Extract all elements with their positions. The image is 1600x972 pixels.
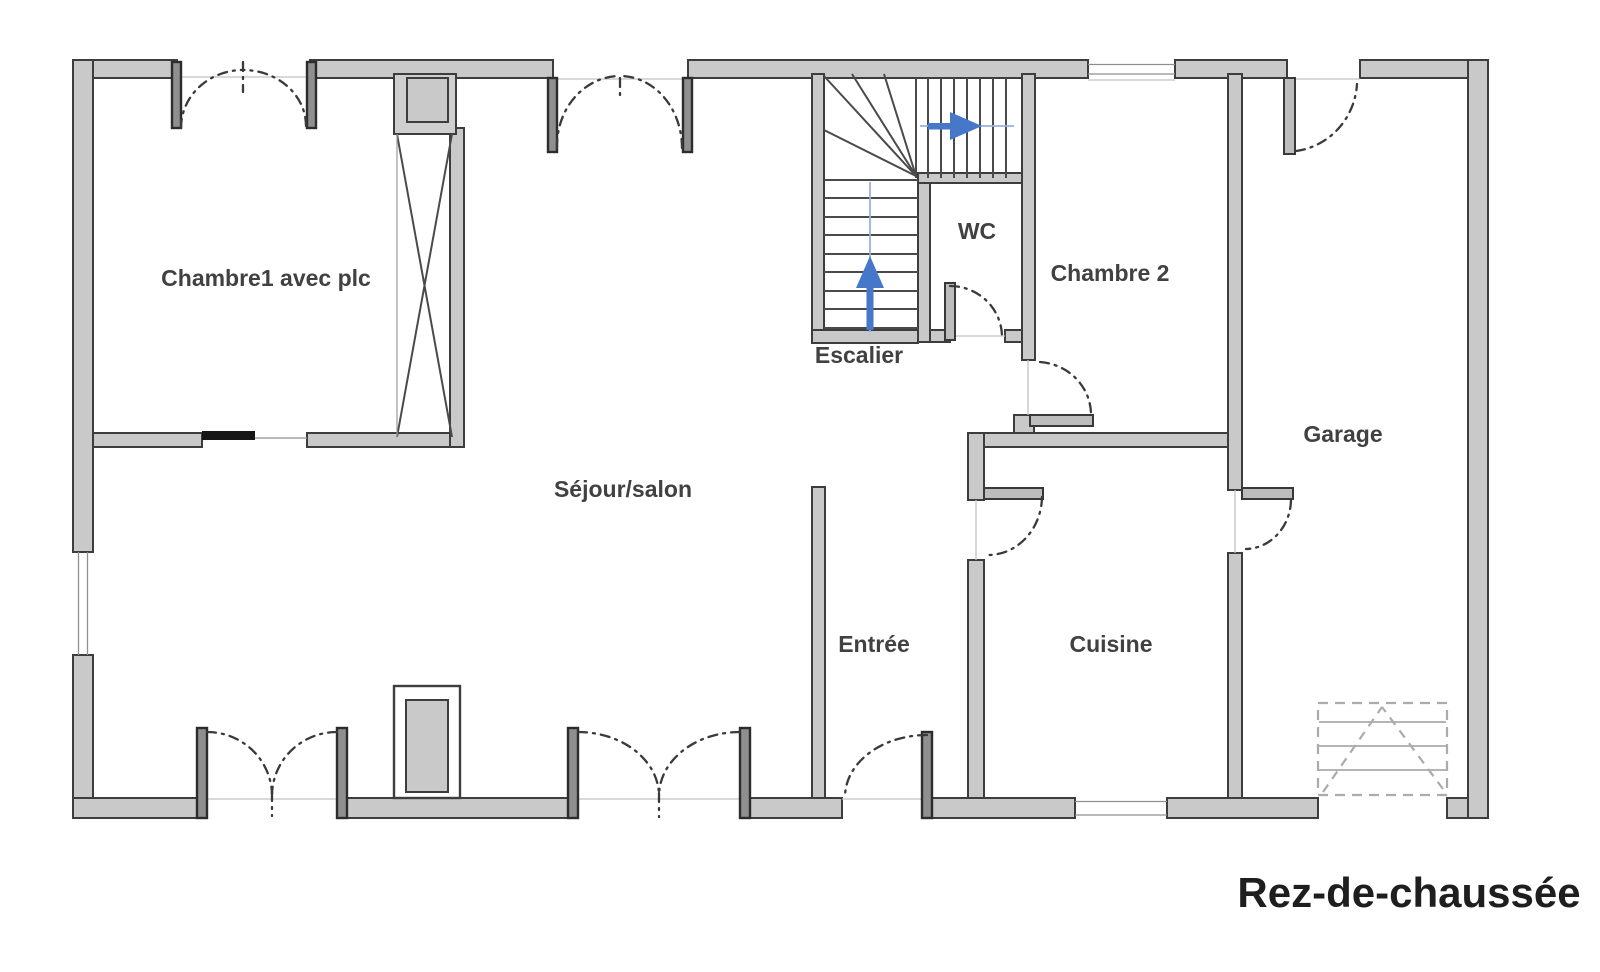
plan-title: Rez-de-chaussée [1237,869,1580,916]
sejour-french-door-east [568,728,750,818]
room-label-entree: Entrée [838,631,910,657]
garage-vehicle-door [1318,703,1447,795]
chambre2-window [1088,65,1175,81]
room-label-chambre2: Chambre 2 [1051,260,1170,286]
closet-x-brace [397,134,452,437]
right-arrow-icon [928,112,982,140]
room-label-wc: WC [958,218,996,244]
cuisine-to-garage-door [1235,488,1293,553]
interior-walls [93,74,1242,798]
wc-door [945,283,1005,340]
chambre1-window [172,62,316,128]
floor-plan: Chambre1 avec plc Séjour/salon Escalier … [0,0,1600,972]
duct-block [394,74,456,134]
chambre1-sliding-door [202,431,307,440]
entree-door [842,732,932,818]
room-label-sejour: Séjour/salon [554,476,692,502]
cuisine-door [976,488,1043,560]
room-label-garage: Garage [1303,421,1382,447]
fireplace-block [394,686,460,798]
chambre2-door [1028,360,1093,426]
stair-winder-fan [824,74,916,178]
room-label-cuisine: Cuisine [1069,631,1152,657]
room-label-chambre1: Chambre1 avec plc [161,265,371,291]
room-label-escalier: Escalier [815,342,903,368]
floor-plan-canvas: Chambre1 avec plc Séjour/salon Escalier … [0,0,1600,972]
sejour-side-window [79,552,88,655]
garage-side-door [1284,78,1360,154]
cuisine-window [1075,802,1167,816]
sejour-window [548,76,692,152]
sejour-french-door-west [197,728,347,818]
outer-walls [73,60,1488,818]
up-arrow-icon [856,256,884,330]
